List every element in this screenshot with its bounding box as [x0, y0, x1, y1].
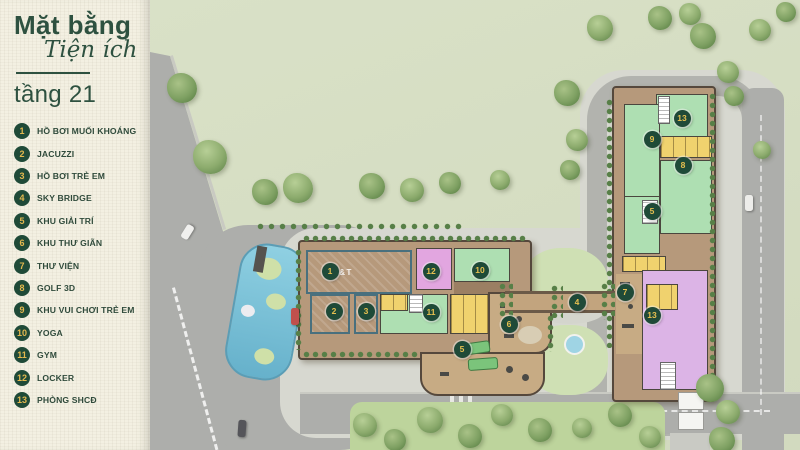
tree	[490, 170, 510, 190]
tree	[679, 3, 701, 25]
legend-number-badge: 10	[14, 325, 30, 341]
tree	[724, 86, 744, 106]
wing-hedge	[302, 234, 526, 244]
legend-item-13: 13PHÒNG SHCĐ	[14, 392, 146, 408]
tree	[167, 73, 197, 103]
tree	[560, 160, 580, 180]
furniture	[504, 334, 514, 338]
service-room-yellow	[660, 136, 712, 158]
bridge-hedge	[498, 282, 513, 320]
legend-label: GOLF 3D	[37, 283, 75, 293]
map-marker-11: 11	[423, 304, 440, 321]
garden-fountain	[564, 334, 585, 355]
legend-list: 1HỒ BƠI MUỐI KHOÁNG2JACUZZI3HỒ BƠI TRẺ E…	[14, 123, 146, 408]
legend-sidebar: Mặt bằng Tiện ích tầng 21 1HỒ BƠI MUỐI K…	[0, 0, 150, 450]
legend-number-badge: 3	[14, 168, 30, 184]
legend-item-10: 10YOGA	[14, 325, 146, 341]
tree	[353, 413, 377, 437]
map-marker-7: 7	[617, 284, 634, 301]
legend-number-badge: 8	[14, 280, 30, 296]
map-marker-5: 5	[644, 203, 661, 220]
legend-label: GYM	[37, 350, 57, 360]
map-marker-12: 12	[423, 263, 440, 280]
legend-label: HỒ BƠI TRẺ EM	[37, 171, 105, 181]
tree	[696, 374, 724, 402]
legend-label: SKY BRIDGE	[37, 193, 92, 203]
map-marker-13: 13	[674, 110, 691, 127]
tree	[554, 80, 580, 106]
pond-rock	[240, 304, 256, 318]
tree	[283, 173, 313, 203]
title-divider	[16, 72, 90, 74]
tree	[690, 23, 716, 49]
stairs	[660, 362, 676, 390]
legend-label: LOCKER	[37, 373, 74, 383]
tree	[528, 418, 552, 442]
site-plan-map: A&T	[150, 0, 800, 450]
legend-label: HỒ BƠI MUỐI KHOÁNG	[37, 126, 136, 136]
utility-slab	[670, 433, 710, 450]
tree	[776, 2, 796, 22]
pond-island	[265, 292, 287, 311]
terrace-5-entertainment	[420, 352, 545, 396]
legend-number-badge: 12	[14, 370, 30, 386]
legend-item-2: 2JACUZZI	[14, 146, 146, 162]
legend-label: KHU THƯ GIÃN	[37, 238, 102, 248]
map-marker-13: 13	[644, 307, 661, 324]
legend-item-11: 11GYM	[14, 347, 146, 363]
legend-label: THƯ VIỆN	[37, 261, 79, 271]
legend-item-7: 7THƯ VIỆN	[14, 258, 146, 274]
tree	[384, 429, 406, 450]
map-marker-1: 1	[322, 263, 339, 280]
legend-label: JACUZZI	[37, 149, 74, 159]
tree	[716, 400, 740, 424]
east-road-dashes	[760, 115, 762, 415]
tree	[749, 19, 771, 41]
map-marker-8: 8	[675, 157, 692, 174]
wing-hedge	[708, 92, 717, 388]
legend-number-badge: 7	[14, 258, 30, 274]
legend-label: KHU GIẢI TRÍ	[37, 216, 94, 226]
map-marker-5: 5	[454, 341, 471, 358]
legend-item-4: 4SKY BRIDGE	[14, 190, 146, 206]
tree	[458, 424, 482, 448]
legend-item-5: 5KHU GIẢI TRÍ	[14, 213, 146, 229]
plan-subtitle: Tiện ích	[44, 37, 146, 63]
legend-item-3: 3HỒ BƠI TRẺ EM	[14, 168, 146, 184]
wing-hedge	[302, 350, 420, 359]
tree	[359, 173, 385, 199]
bridge-hedge	[600, 282, 615, 320]
legend-number-badge: 13	[14, 392, 30, 408]
car	[291, 308, 299, 325]
legend-number-badge: 2	[14, 146, 30, 162]
wing-hedge	[294, 248, 303, 350]
tree	[709, 427, 735, 450]
legend-number-badge: 1	[14, 123, 30, 139]
tree	[648, 6, 672, 30]
legend-item-6: 6KHU THƯ GIÃN	[14, 235, 146, 251]
tree	[439, 172, 461, 194]
tree	[252, 179, 278, 205]
legend-number-badge: 9	[14, 302, 30, 318]
legend-item-1: 1HỒ BƠI MUỐI KHOÁNG	[14, 123, 146, 139]
room-9-kids-play	[624, 104, 660, 210]
legend-item-8: 8GOLF 3D	[14, 280, 146, 296]
map-marker-3: 3	[358, 303, 375, 320]
tree	[608, 403, 632, 427]
tree	[753, 141, 771, 159]
utility-pad	[678, 412, 704, 430]
map-marker-6: 6	[501, 316, 518, 333]
legend-number-badge: 6	[14, 235, 30, 251]
tree	[193, 140, 227, 174]
furniture	[506, 366, 513, 373]
tree	[717, 61, 739, 83]
pond-island	[253, 347, 275, 366]
furniture	[628, 304, 633, 309]
legend-label: PHÒNG SHCĐ	[37, 395, 97, 405]
map-marker-9: 9	[644, 131, 661, 148]
plan-title: Mặt bằng	[14, 12, 146, 39]
floor-label: tầng 21	[14, 81, 146, 109]
tree	[572, 418, 592, 438]
legend-label: YOGA	[37, 328, 63, 338]
legend-item-12: 12LOCKER	[14, 370, 146, 386]
tree	[491, 404, 513, 426]
furniture	[622, 324, 634, 328]
legend-number-badge: 11	[14, 347, 30, 363]
car	[237, 420, 246, 438]
stairs	[409, 294, 423, 313]
map-marker-2: 2	[326, 303, 343, 320]
tree	[417, 407, 443, 433]
legend-number-badge: 4	[14, 190, 30, 206]
tree	[639, 426, 661, 448]
legend-item-9: 9KHU VUI CHƠI TRẺ EM	[14, 302, 146, 318]
map-marker-4: 4	[569, 294, 586, 311]
bridge-hedge	[550, 284, 563, 318]
east-wing-building	[612, 86, 716, 402]
legend-label: KHU VUI CHƠI TRẺ EM	[37, 305, 135, 315]
furniture	[522, 374, 529, 381]
tree	[587, 15, 613, 41]
terrace-path	[518, 326, 542, 344]
page: Mặt bằng Tiện ích tầng 21 1HỒ BƠI MUỐI K…	[0, 0, 800, 450]
tree	[566, 129, 588, 151]
game-mat	[468, 357, 499, 371]
car	[745, 195, 753, 211]
map-marker-10: 10	[472, 262, 489, 279]
legend-number-badge: 5	[14, 213, 30, 229]
elevator	[658, 96, 670, 124]
room-11-lockers	[380, 294, 408, 311]
furniture	[440, 372, 449, 376]
tree	[400, 178, 424, 202]
hedge-row	[255, 221, 463, 234]
